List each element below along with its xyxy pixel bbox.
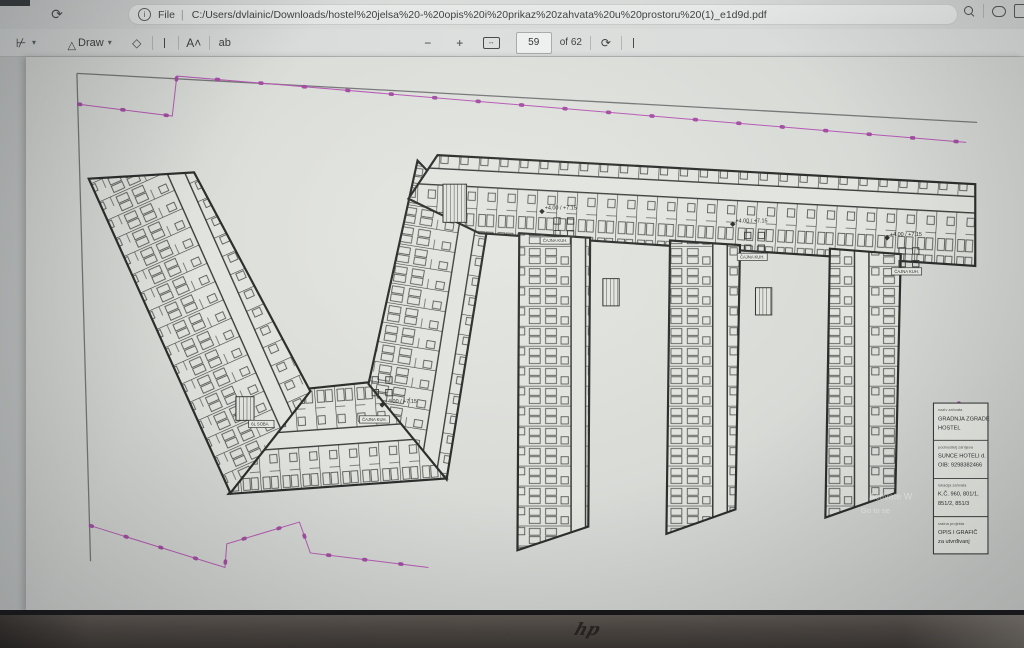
title-block-value: HOSTEL xyxy=(938,425,961,431)
layout-icon[interactable] xyxy=(628,38,641,48)
wing-tooth-1 xyxy=(517,233,590,550)
floor-plan-drawing: +4.00 / +7.15 +4.00 / +7.15 +4.00 / +7.1… xyxy=(0,57,1024,612)
divider xyxy=(983,4,984,18)
draw-button[interactable]: Draw xyxy=(78,37,104,49)
level-label: +4.00 / +7.15 xyxy=(385,399,417,405)
watermark-line2: Go to se xyxy=(861,506,890,515)
tea-kitchen-label: ČAJNA KUH. xyxy=(894,269,918,274)
divider xyxy=(621,36,622,50)
wing-tooth-2 xyxy=(666,240,740,533)
divider xyxy=(178,36,179,50)
page-total-label: of 62 xyxy=(560,37,582,48)
title-block-value: K.Č. 960, 801/1, xyxy=(938,491,979,498)
browser-edge-icon[interactable] xyxy=(1014,4,1024,18)
read-aloud-icon[interactable]: A˄ xyxy=(185,33,203,53)
browser-extra-icon[interactable] xyxy=(992,6,1006,17)
eraser-icon[interactable]: ◇ xyxy=(128,33,146,53)
highlighter-chevron-icon[interactable]: ▾ xyxy=(32,38,36,47)
title-block-value: GRADNJA ZGRADE xyxy=(938,416,990,422)
level-label: +4.00 / +7.15 xyxy=(545,206,577,212)
title-block-row-label: lokacija zahvata xyxy=(938,483,967,488)
zoom-in-button[interactable]: + xyxy=(451,33,469,53)
watermark-line1: Activate W xyxy=(869,491,913,501)
title-block-value: za utvrđivanj xyxy=(938,539,970,545)
title-block-value: SUNCE HOTELI d. xyxy=(938,454,986,460)
draw-chevron-icon[interactable]: ▾ xyxy=(108,38,112,47)
room-label: 6L SOBA xyxy=(251,422,268,427)
title-block-row-label: razina projekta xyxy=(938,521,965,526)
file-protocol-label: File xyxy=(158,9,175,21)
browser-address-bar: ⟳ i File | C:/Users/dvlainic/Downloads/h… xyxy=(0,0,1024,29)
search-icon[interactable] xyxy=(964,6,975,17)
tea-kitchen-label: ČAJNA KUH. xyxy=(362,417,386,422)
title-block-row-label: podnositelj zahtjeva xyxy=(938,444,974,449)
url-separator: | xyxy=(181,9,184,21)
divider xyxy=(209,36,210,50)
building-wings xyxy=(89,155,976,550)
reload-icon[interactable]: ⟳ xyxy=(46,4,68,26)
tab-strip-sliver xyxy=(0,0,30,6)
title-block-row-label: naziv zahvata xyxy=(938,407,963,412)
highlighter-icon[interactable]: ⊬ xyxy=(12,33,30,53)
wing-tooth-3 xyxy=(825,249,900,518)
tea-kitchen-label: ČAJNA KUH. xyxy=(740,254,764,259)
page-info-icon[interactable]: i xyxy=(138,8,151,21)
zoom-out-button[interactable]: − xyxy=(419,33,437,53)
pdf-toolbar: ⊬ ▾ ▽ Draw ▾ ◇ A˄ ab − + ↔ of 62 ⟳ xyxy=(0,29,1024,57)
page-number-input[interactable] xyxy=(516,32,552,54)
title-block-value: OIB: 9298382466 xyxy=(938,463,982,469)
divider xyxy=(590,36,591,50)
text-tools-icon[interactable]: ab xyxy=(216,33,234,53)
rotate-icon[interactable]: ⟳ xyxy=(597,33,615,53)
fit-to-width-icon[interactable]: ↔ xyxy=(483,37,500,49)
pdf-viewer-canvas[interactable]: +4.00 / +7.15 +4.00 / +7.15 +4.00 / +7.1… xyxy=(0,57,1024,612)
url-field[interactable]: i File | C:/Users/dvlainic/Downloads/hos… xyxy=(128,4,958,25)
level-label: +4.00 / +7.15 xyxy=(890,232,922,238)
monitor-bezel xyxy=(0,615,1024,648)
title-block-value: 851/2, 851/3 xyxy=(938,501,969,507)
title-block: naziv zahvata podnositelj zahtjeva lokac… xyxy=(933,403,989,554)
draw-pen-icon[interactable]: ▽ xyxy=(58,33,76,53)
title-block-value: OPIS I GRAFIČ xyxy=(938,529,977,536)
level-label: +4.00 / +7.15 xyxy=(735,218,767,224)
tea-kitchen-label: ČAJNA KUH. xyxy=(543,238,567,243)
divider xyxy=(152,36,153,50)
url-text[interactable]: C:/Users/dvlainic/Downloads/hostel%20jel… xyxy=(192,9,767,21)
page-view-icon[interactable] xyxy=(159,38,172,48)
